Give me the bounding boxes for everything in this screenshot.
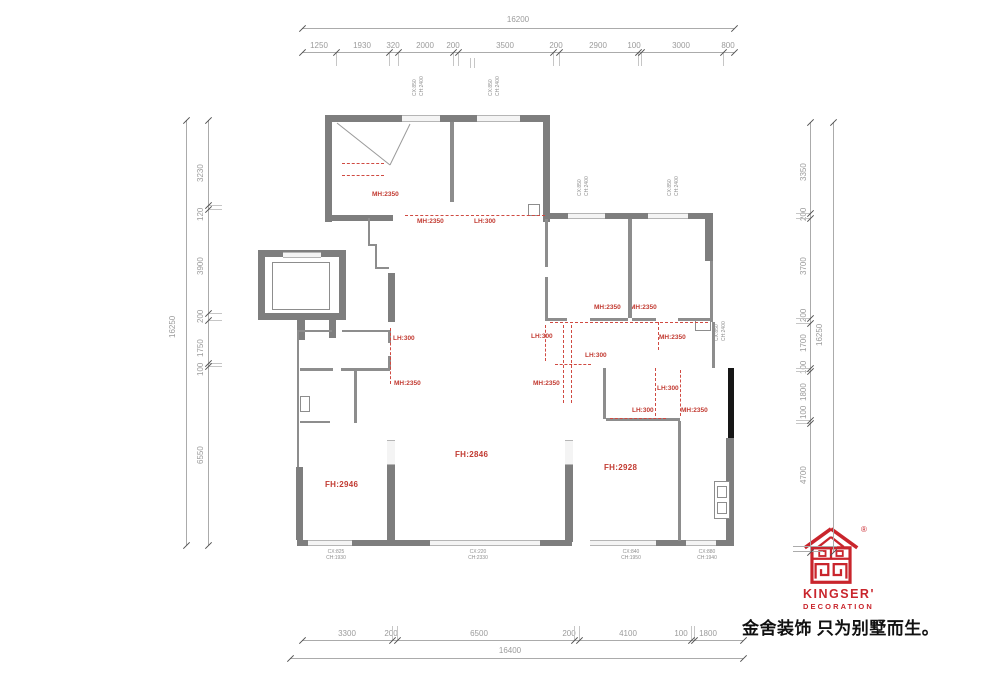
partition-wall	[341, 368, 390, 371]
extension-line	[641, 52, 642, 66]
wall-segment	[605, 213, 648, 219]
partition-wall	[632, 318, 656, 321]
dimension-line	[793, 546, 837, 547]
partition-wall	[300, 421, 330, 423]
opening-dash-line	[342, 175, 384, 176]
wall-segment	[339, 257, 346, 320]
opening-dash-line	[390, 328, 391, 384]
wall-segment	[540, 540, 572, 546]
wall-segment	[296, 467, 303, 540]
wall-segment	[440, 115, 477, 122]
opening-dash-line	[342, 163, 384, 164]
fixture	[272, 262, 330, 310]
partition-wall	[375, 267, 389, 269]
partition-wall	[590, 318, 628, 321]
window	[590, 540, 656, 546]
extension-line	[470, 58, 471, 68]
extension-line	[559, 52, 560, 66]
extension-line	[208, 209, 222, 210]
opening-dash-line	[680, 370, 681, 416]
window	[430, 540, 540, 546]
dimension-line	[302, 52, 734, 53]
opening-dash-line	[655, 368, 656, 416]
window	[686, 540, 716, 546]
wall-segment	[297, 540, 308, 546]
window	[568, 213, 605, 219]
partition-wall	[710, 261, 713, 322]
partition-wall	[545, 277, 548, 320]
wall-segment	[258, 257, 265, 320]
extension-line	[453, 52, 454, 66]
window	[648, 213, 688, 219]
wall-segment	[352, 540, 430, 546]
partition-wall	[297, 330, 332, 332]
logo-subtitle-text: DECORATION	[803, 602, 874, 611]
registered-mark: ®	[861, 525, 867, 534]
partition-wall	[375, 246, 377, 269]
extension-line	[474, 58, 475, 68]
wall-segment	[388, 273, 395, 322]
partition-wall	[354, 371, 357, 423]
extension-line	[458, 52, 459, 66]
dimension-line	[290, 658, 743, 659]
opening-dash-line	[555, 364, 591, 365]
partition-wall	[603, 368, 606, 419]
fixture	[717, 502, 727, 514]
dimension-line	[810, 122, 811, 552]
window	[402, 115, 440, 122]
partition-wall	[628, 219, 632, 318]
opening-dash-line	[571, 325, 572, 403]
wall-segment	[705, 219, 713, 261]
extension-line	[336, 52, 337, 66]
extension-line	[208, 320, 222, 321]
window	[308, 540, 352, 546]
extension-line	[208, 313, 222, 314]
opening-dash-line	[658, 322, 659, 350]
wall-segment	[543, 115, 550, 222]
dimension-line	[208, 120, 209, 545]
partition-wall	[297, 332, 299, 467]
fixture	[717, 486, 727, 498]
extension-line	[723, 52, 724, 66]
partition-wall	[368, 218, 370, 246]
wall-segment	[325, 115, 402, 122]
opening-dash-line	[610, 418, 666, 419]
dimension-line	[793, 551, 823, 552]
opening-dash-line	[545, 325, 546, 361]
dimension-line	[302, 640, 743, 641]
wall-segment	[565, 465, 573, 542]
wall-segment	[325, 122, 332, 222]
logo-slogan: 金舍装饰 只为别墅而生。	[742, 614, 939, 639]
partition-wall	[678, 421, 681, 541]
opening-dash-line	[550, 322, 708, 323]
extension-line	[208, 366, 222, 367]
partition-wall	[342, 330, 389, 332]
window	[477, 115, 520, 122]
wall-segment	[545, 213, 570, 219]
partition-wall	[545, 219, 548, 267]
wall-segment	[656, 540, 686, 546]
wall-segment	[716, 540, 734, 546]
partition-wall	[712, 322, 715, 368]
extension-line	[389, 52, 390, 66]
wall-segment	[325, 215, 393, 221]
extension-line	[398, 52, 399, 66]
floor-plan-canvas: 16200 1250 1930 320 2000 200 3500 200 29…	[0, 0, 1000, 673]
fixture	[300, 396, 310, 412]
window	[565, 440, 573, 465]
wall-segment	[329, 318, 336, 338]
partition-wall	[545, 318, 567, 321]
window	[387, 440, 395, 465]
logo-brand-text: KINGSER'	[803, 587, 875, 601]
wall-segment	[387, 465, 395, 542]
dimension-line	[833, 122, 834, 552]
dimension-line	[302, 28, 734, 29]
window	[283, 252, 321, 258]
dimension-line	[186, 120, 187, 545]
opening-dash-line	[563, 325, 564, 403]
extension-line	[553, 52, 554, 66]
partition-wall	[300, 368, 333, 371]
opening-dash-line	[405, 215, 545, 216]
solid-wall	[728, 368, 734, 438]
partition-wall	[450, 122, 454, 202]
